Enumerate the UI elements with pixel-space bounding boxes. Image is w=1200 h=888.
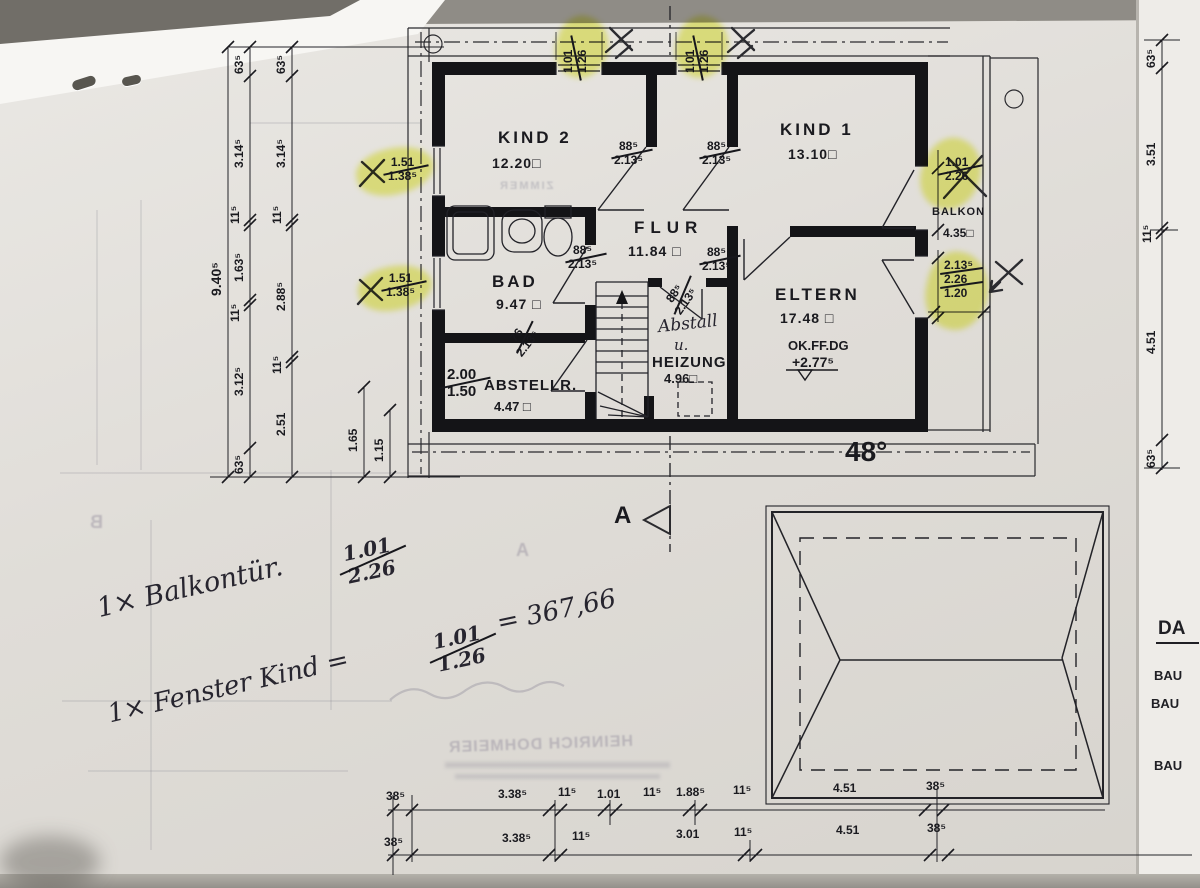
dim-left: 11⁵ (228, 304, 242, 322)
dim-left: 11⁵ (270, 356, 284, 374)
dim-value: 2.13⁵ (944, 258, 973, 272)
x-mark (606, 28, 632, 58)
window-dim-top2: 1.01 1.26 (684, 47, 712, 76)
fraction-top: 2.00 (444, 366, 479, 383)
dim-bottom: 38⁵ (384, 835, 403, 849)
room-area-bad: 9.47 □ (496, 296, 542, 312)
room-label-kind2: KIND 2 (498, 128, 572, 148)
level-mark (786, 370, 838, 380)
dim-left: 63⁵ (232, 55, 246, 74)
window-dim-left1: 1.51 1.38⁵ (386, 156, 419, 184)
dim-left: 11⁵ (228, 206, 242, 224)
dim-left-outer: 9.40⁵ (208, 262, 224, 296)
roof-angle-label: 48° (845, 436, 887, 468)
level-value: +2.77⁵ (792, 354, 834, 370)
dim-left-inner: 1.15 (372, 439, 386, 462)
door-width: 88⁵ (616, 140, 641, 154)
margin-label-bau1: BAU (1154, 668, 1182, 683)
bleed-handwriting (390, 682, 564, 700)
dim-right: 63⁵ (1144, 49, 1158, 68)
section-marker-a: A (614, 502, 631, 530)
room-area-abstellraum: 4.47 □ (494, 399, 531, 414)
bleed-stamp-line (455, 774, 660, 779)
door-dim-eltern: 88⁵ 2.13⁵ (700, 246, 733, 274)
window-dim-top1: 1.01 1.26 (562, 47, 590, 76)
dim-bottom: 11⁵ (643, 785, 661, 799)
boiler-dashed-box (678, 382, 712, 416)
dim-value: 2.26 (944, 272, 973, 286)
dim-left: 63⁵ (232, 455, 246, 474)
dim-bottom: 11⁵ (558, 785, 576, 799)
room-label-balkon: BALKON (932, 206, 985, 218)
window-width: 1.01 (562, 47, 576, 76)
dim-bottom: 38⁵ (927, 821, 946, 835)
window-width: 1.01 (684, 47, 698, 76)
margin-label-bau2: BAU (1151, 696, 1179, 711)
room-label-bad: BAD (492, 272, 538, 292)
room-label-flur: FLUR (634, 218, 703, 238)
room-area-heizung: 4.96□ (664, 371, 697, 386)
room-label-heizung: HEIZUNG (652, 354, 727, 371)
bleed-marker-a: A (516, 540, 529, 561)
room-area-balkon: 4.35□ (943, 226, 974, 240)
plan-linework (0, 0, 1200, 888)
window-width: 1.51 (388, 156, 417, 170)
dim-value: 1.20 (944, 286, 973, 300)
door-dim-balkon-kind1: 1.01 2.26 (942, 156, 971, 184)
dim-bottom: 11⁵ (572, 829, 590, 843)
window-dim-left2: 1.51 1.38⁵ (384, 272, 417, 300)
x-mark (728, 28, 754, 58)
dim-left: 1.63⁵ (232, 253, 246, 282)
dim-bottom: 4.51 (833, 781, 856, 795)
door-width: 88⁵ (570, 244, 595, 258)
dim-bottom: 1.01 (597, 787, 620, 801)
dim-left: 2.51 (274, 413, 288, 436)
dim-left: 3.12⁵ (232, 367, 246, 396)
level-label: OK.FF.DG (788, 338, 849, 353)
dim-bottom: 3.38⁵ (498, 787, 527, 801)
bleed-marker-b: B (90, 512, 103, 533)
room-label-eltern: ELTERN (775, 285, 860, 305)
dim-bottom: 38⁵ (926, 779, 945, 793)
dim-bottom: 3.01 (676, 827, 699, 841)
room-label-kind1: KIND 1 (780, 120, 854, 140)
x-mark (990, 260, 1022, 292)
dim-bottom: 38⁵ (386, 789, 405, 803)
dim-left: 3.14⁵ (274, 139, 288, 168)
dim-left-inner: 1.65 (346, 429, 360, 452)
margin-label-da: DA (1156, 618, 1199, 644)
room-area-flur: 11.84 □ (628, 243, 682, 259)
dim-bottom: 3.38⁵ (502, 831, 531, 845)
room-label-abstellraum: ABSTELLR. (484, 377, 577, 394)
dim-left: 3.14⁵ (232, 139, 246, 168)
dim-right: 4.51 (1144, 331, 1158, 354)
dim-bottom: 4.51 (836, 823, 859, 837)
bleed-stamp-line (445, 762, 670, 768)
dim-right: 11⁵ (1140, 225, 1154, 243)
balcony-outline (928, 56, 990, 432)
room-area-kind1: 13.10□ (788, 146, 838, 162)
door-dim-kind2: 88⁵ 2.13⁵ (612, 140, 645, 168)
door-dim-kind1: 88⁵ 2.13⁵ (700, 140, 733, 168)
dim-left: 11⁵ (270, 206, 284, 224)
margin-label-bau3: BAU (1154, 758, 1182, 773)
bleed-zimmer: ZIMMER (498, 180, 553, 192)
dim-bottom: 11⁵ (734, 825, 752, 839)
dim-right: 3.51 (1144, 143, 1158, 166)
dim-left: 63⁵ (274, 55, 288, 74)
room-area-kind2: 12.20□ (492, 155, 542, 171)
door-width: 88⁵ (704, 246, 729, 260)
dim-left: 2.88⁵ (274, 282, 288, 311)
dim-bottom: 1.88⁵ (676, 785, 705, 799)
window-width: 1.51 (386, 272, 415, 286)
garage-roof-plan (766, 506, 1109, 804)
dim-right: 63⁵ (1144, 449, 1158, 468)
abstell-height-fraction: 2.00 1.50 (444, 366, 479, 401)
handwritten-u: u. (674, 336, 688, 354)
room-area-eltern: 17.48 □ (780, 310, 834, 326)
door-dim-bad: 88⁵ 2.13⁵ (566, 244, 599, 272)
stairs (596, 282, 648, 419)
door-dim-balkon-eltern: 2.13⁵ 2.26 1.20 (944, 258, 973, 300)
dim-bottom: 11⁵ (733, 783, 751, 797)
scanned-floorplan-page: KIND 2 12.20□ KIND 1 13.10□ FLUR 11.84 □… (0, 0, 1200, 888)
door-width: 88⁵ (704, 140, 729, 154)
door-width: 1.01 (942, 156, 971, 170)
